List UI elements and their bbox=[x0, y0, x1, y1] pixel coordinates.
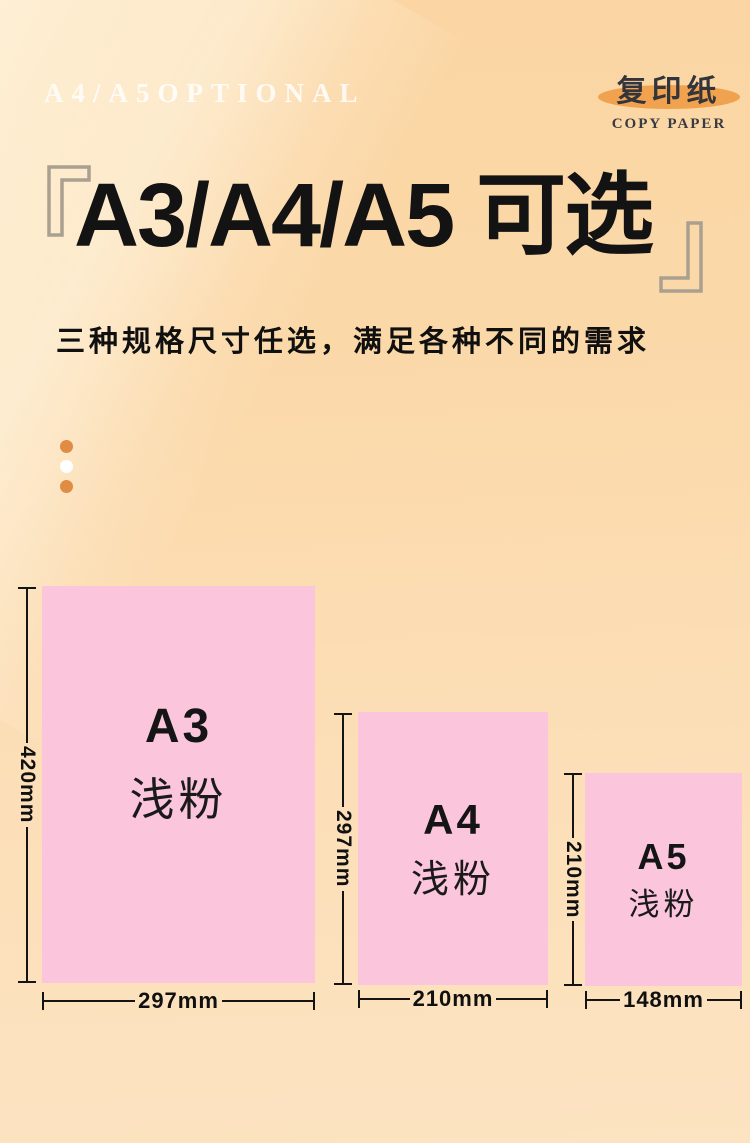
a5-height-value: 210mm bbox=[561, 838, 585, 921]
paper-swatch-a5: A5 浅粉 bbox=[585, 773, 742, 986]
a3-height-dimension: 420mm bbox=[18, 587, 36, 983]
dimension-line bbox=[360, 998, 410, 1000]
dimension-tick bbox=[740, 991, 742, 1009]
a3-height-value: 420mm bbox=[15, 743, 39, 826]
watermark-text: A4/A5OPTIONAL bbox=[44, 78, 366, 109]
dimension-tick bbox=[334, 983, 352, 985]
a4-height-dimension: 297mm bbox=[334, 713, 352, 985]
dimension-line bbox=[222, 1000, 313, 1002]
dimension-line bbox=[342, 891, 344, 983]
decor-dots bbox=[60, 440, 73, 493]
dimension-tick bbox=[313, 992, 315, 1010]
a3-width-value: 297mm bbox=[135, 988, 222, 1014]
dimension-line bbox=[44, 1000, 135, 1002]
page-title: A3/A4/A5 可选 bbox=[74, 160, 694, 273]
a5-width-value: 148mm bbox=[620, 987, 707, 1013]
a5-width-dimension: 148mm bbox=[585, 991, 742, 1009]
badge-title: 复印纸 bbox=[596, 66, 742, 110]
paper-size-label: A3 bbox=[145, 703, 212, 751]
paper-color-label: 浅粉 bbox=[411, 861, 495, 899]
dimension-tick bbox=[18, 981, 36, 983]
decor-dot-icon bbox=[60, 480, 73, 493]
dimension-line bbox=[26, 589, 28, 743]
a4-width-value: 210mm bbox=[410, 986, 497, 1012]
product-banner: A4/A5OPTIONAL 复印纸 COPY PAPER A3/A4/A5 可选… bbox=[0, 0, 750, 1143]
dimension-tick bbox=[546, 990, 548, 1008]
dimension-line bbox=[342, 715, 344, 807]
dimension-line bbox=[707, 999, 740, 1001]
dimension-line bbox=[587, 999, 620, 1001]
brand-badge: 复印纸 COPY PAPER bbox=[596, 64, 744, 142]
a4-height-value: 297mm bbox=[331, 807, 355, 890]
paper-size-label: A5 bbox=[637, 839, 689, 875]
dimension-tick bbox=[564, 984, 582, 986]
dimension-line bbox=[572, 775, 574, 838]
paper-color-label: 浅粉 bbox=[629, 889, 699, 920]
a5-height-dimension: 210mm bbox=[564, 773, 582, 986]
dimension-line bbox=[572, 921, 574, 984]
a3-width-dimension: 297mm bbox=[42, 992, 315, 1010]
paper-swatch-a3: A3 浅粉 bbox=[42, 586, 315, 983]
paper-color-label: 浅粉 bbox=[129, 777, 227, 822]
dimension-line bbox=[496, 998, 546, 1000]
dimension-line bbox=[26, 827, 28, 981]
decor-dot-icon bbox=[60, 460, 73, 473]
paper-swatch-a4: A4 浅粉 bbox=[358, 712, 548, 985]
decor-dot-icon bbox=[60, 440, 73, 453]
badge-subtitle: COPY PAPER bbox=[596, 116, 742, 133]
a4-width-dimension: 210mm bbox=[358, 990, 548, 1008]
page-subtitle: 三种规格尺寸任选，满足各种不同的需求 bbox=[56, 318, 650, 360]
paper-size-label: A4 bbox=[423, 799, 483, 841]
